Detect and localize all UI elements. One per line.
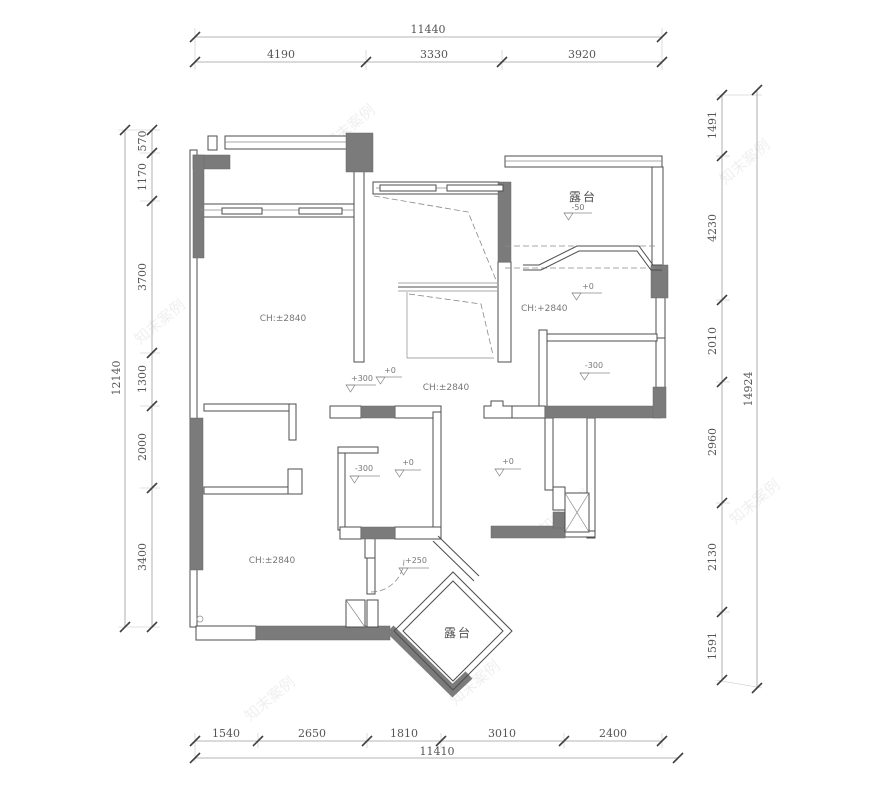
dim-right-seg-6: 1591 xyxy=(706,632,719,660)
floor-plan-drawing: 知末案例 知末案例 知末案例 知末案例 知末案例 知末案例 知末案例 11440… xyxy=(0,0,880,789)
dim-left-seg-2: 1170 xyxy=(136,163,149,191)
dim-left-seg-5: 2000 xyxy=(136,433,149,461)
dim-bottom-seg-1: 1540 xyxy=(212,727,240,740)
dim-right-seg-2: 4230 xyxy=(706,214,719,242)
level-room-a-plus0: +0 xyxy=(402,458,414,467)
dim-bottom-seg-4: 3010 xyxy=(488,727,516,740)
diagonal-passage-wall xyxy=(433,536,479,581)
floor-plan-page: 知末案例 知末案例 知末案例 知末案例 知末案例 知末案例 知末案例 11440… xyxy=(0,0,880,789)
window-glyph xyxy=(222,208,262,214)
elevator-shaft xyxy=(565,493,589,532)
room-height-bottom-left: CH:±2840 xyxy=(249,556,296,566)
dim-left-total: 12140 xyxy=(110,361,123,396)
level-terrace-top: -50 xyxy=(571,203,584,212)
dim-left-seg-3: 3700 xyxy=(136,263,149,291)
terrace-bottom-label: 露台 xyxy=(444,625,472,640)
room-height-right: CH:+2840 xyxy=(521,304,568,314)
level-room-a-minus300: -300 xyxy=(355,464,373,473)
watermark-text: 知末案例 xyxy=(716,136,774,188)
dim-top-seg-2: 3330 xyxy=(420,48,448,61)
dim-bottom-seg-2: 2650 xyxy=(298,727,326,740)
dim-bottom-seg-5: 2400 xyxy=(599,727,627,740)
dim-top-total: 11440 xyxy=(411,23,446,36)
dim-top-seg-3: 3920 xyxy=(568,48,596,61)
room-height-center: CH:±2840 xyxy=(423,383,470,393)
plan-windows xyxy=(200,185,503,214)
dim-right-seg-5: 2130 xyxy=(706,543,719,571)
dimension-top: 11440 4190 3330 3920 xyxy=(190,23,667,70)
dim-left-seg-6: 3400 xyxy=(136,543,149,571)
level-entry-plus0: +0 xyxy=(384,366,396,375)
dim-top-seg-1: 4190 xyxy=(267,48,295,61)
level-room-b-plus0: +0 xyxy=(502,457,514,466)
dimension-left: 12140 570 1170 3700 1300 2000 3400 xyxy=(110,125,160,632)
dimension-bottom: 1540 2650 1810 3010 2400 11410 xyxy=(190,727,683,763)
dim-left-seg-1: 570 xyxy=(136,131,149,152)
dim-right-seg-3: 2010 xyxy=(706,327,719,355)
window-glyph xyxy=(447,185,503,191)
dim-bottom-total: 11410 xyxy=(420,745,455,758)
bay-window-outer xyxy=(523,251,662,270)
bay-window-inner xyxy=(523,246,662,265)
terrace-top-label: 露台 xyxy=(569,189,597,204)
level-door-plus250: +250 xyxy=(405,556,427,565)
dim-right-seg-4: 2960 xyxy=(706,428,719,456)
window-glyph xyxy=(380,185,436,191)
watermark-text: 知末案例 xyxy=(726,476,784,528)
cabinet-fixture xyxy=(346,600,378,627)
window-glyph xyxy=(299,208,342,214)
level-right-room-minus300: -300 xyxy=(585,361,603,370)
door-swing-arc xyxy=(371,559,404,592)
dim-left-seg-4: 1300 xyxy=(136,365,149,393)
entry-door xyxy=(367,558,404,594)
dim-bottom-seg-3: 1810 xyxy=(390,727,418,740)
level-below-terrace: +0 xyxy=(582,282,594,291)
watermark-text: 知末案例 xyxy=(131,296,189,348)
dim-right-seg-1: 1491 xyxy=(706,111,719,139)
level-entry-plus300: +300 xyxy=(351,374,373,383)
room-height-top-left: CH:±2840 xyxy=(260,314,307,324)
watermark-text: 知末案例 xyxy=(241,673,299,725)
dim-right-total: 14924 xyxy=(742,372,755,407)
door-leaf xyxy=(367,558,375,594)
